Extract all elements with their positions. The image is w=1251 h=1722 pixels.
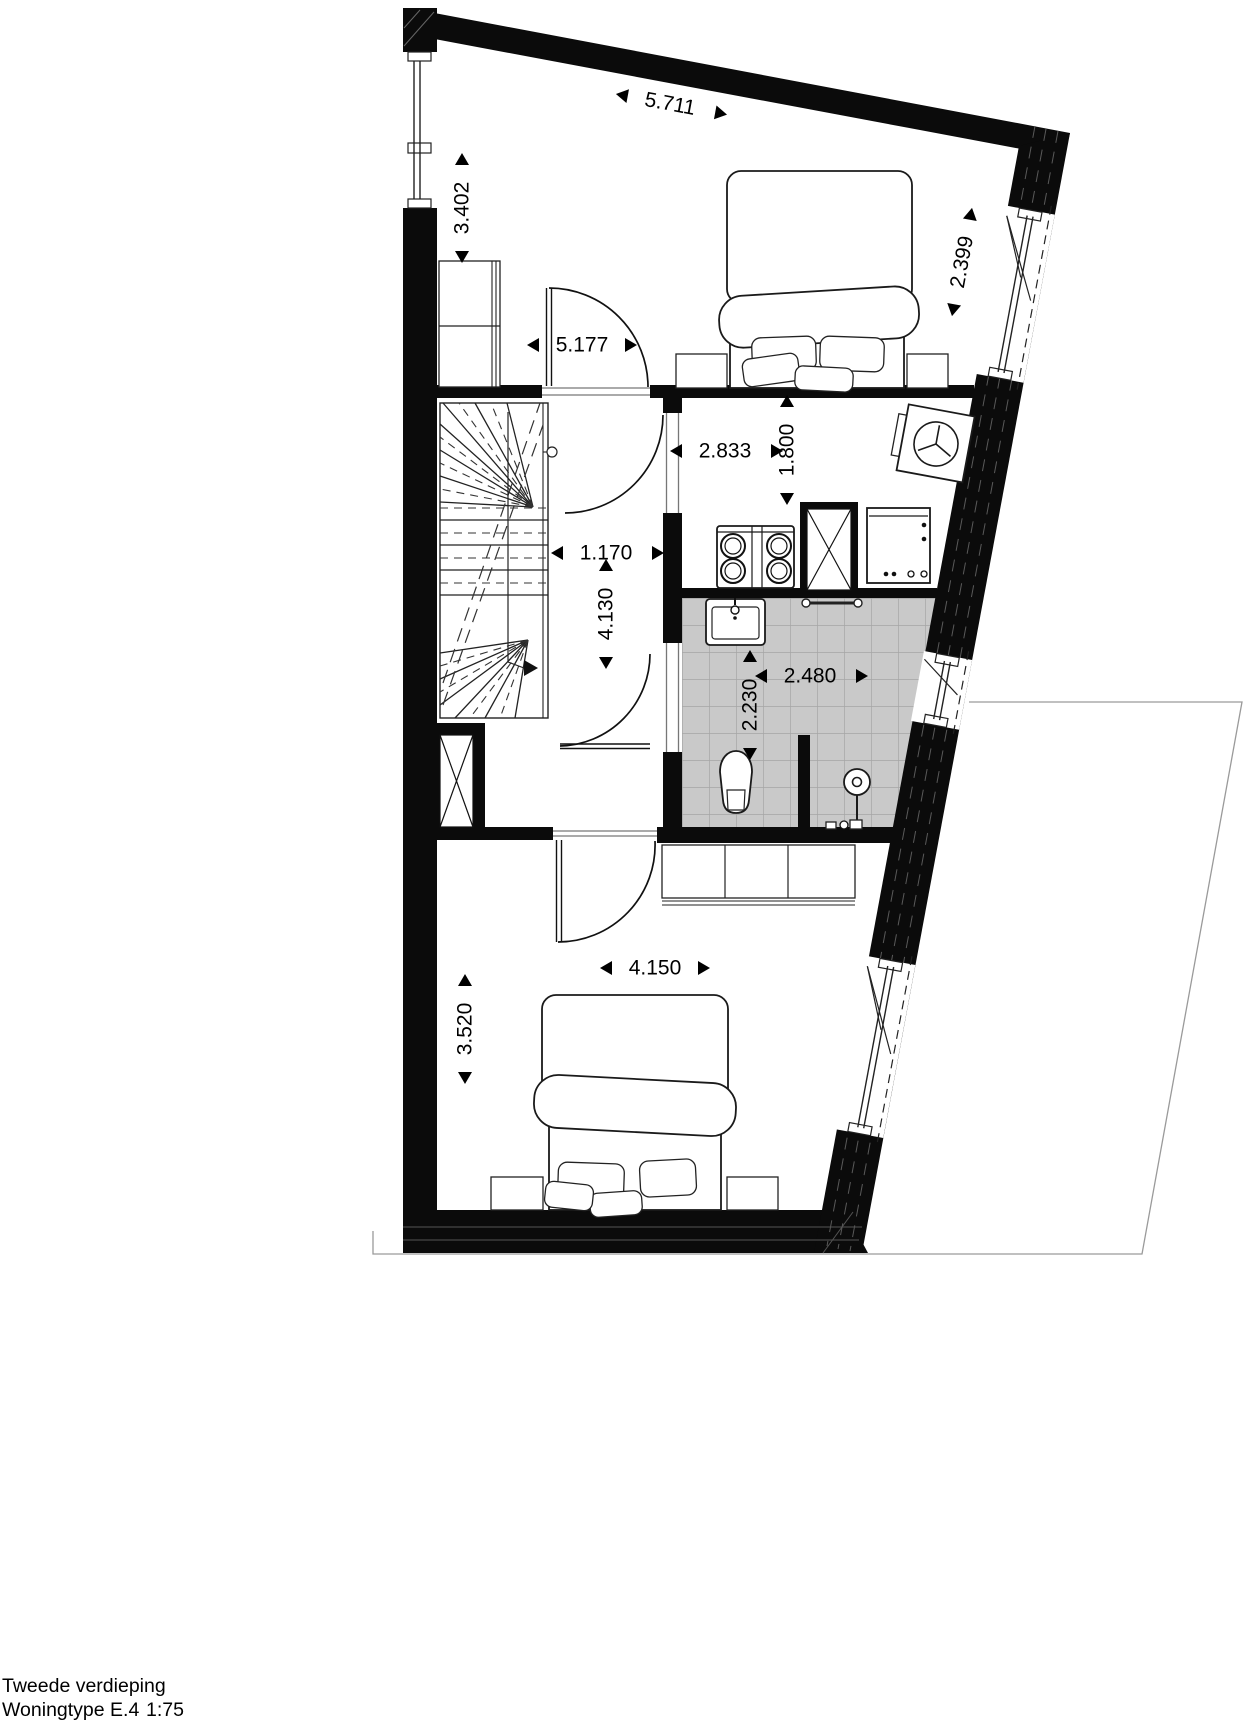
nightstand [727,1177,778,1210]
bed-double [718,171,921,393]
opening-bedroom1 [542,385,650,398]
dim-value: 2.230 [739,679,762,732]
dim-value: 2.833 [699,440,752,463]
nightstand [907,354,948,388]
cabinet-row [662,845,855,905]
floorplan-drawing: 5.711 3.402 2.399 5.177 2.833 1.800 1.17… [0,0,1251,1722]
cooktop [717,526,794,588]
nightstand [491,1177,543,1210]
staircase [440,403,557,718]
ventilation-unit [889,403,975,483]
stair-newel-post [547,447,557,457]
dim-value: 4.150 [629,957,682,980]
nightstand [676,354,727,388]
dim-value: 2.480 [784,665,837,688]
wardrobe [439,261,500,387]
toilet [720,751,752,813]
bed-double [533,995,737,1218]
scale-label: 1:75 [146,1699,184,1721]
floorplan-page: 5.711 3.402 2.399 5.177 2.833 1.800 1.17… [0,0,1251,1722]
dim-value: 4.130 [595,588,618,641]
wall-bottom [403,1210,868,1253]
dim-value: 3.520 [454,1003,477,1056]
canvas-background [0,0,1251,1722]
floor-title: Tweede verdieping [2,1675,166,1697]
wall-shower-partition [798,735,810,830]
dim-value: 5.177 [556,334,609,357]
washing-machine [867,508,930,583]
unit-type-label: Woningtype E.4 [2,1699,139,1721]
dim-value: 3.402 [451,182,474,235]
window-left [403,52,437,208]
sink [706,598,765,645]
dim-value: 1.800 [776,424,799,477]
